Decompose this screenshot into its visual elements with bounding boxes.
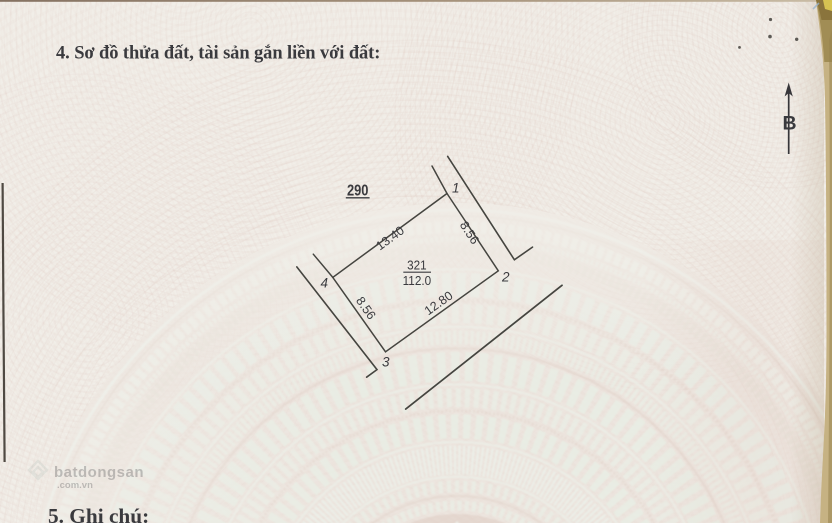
svg-text:4: 4	[321, 276, 329, 291]
svg-text:1: 1	[452, 181, 460, 196]
svg-text:batdongsan: batdongsan	[54, 464, 144, 481]
svg-text:290: 290	[347, 183, 369, 200]
svg-text:112.0: 112.0	[403, 273, 432, 288]
svg-text:2: 2	[501, 270, 510, 285]
svg-text:321: 321	[407, 258, 427, 273]
svg-text:5. Ghi chú:: 5. Ghi chú:	[48, 504, 149, 523]
svg-text:4. Sơ đồ thửa đất, tài sản gắn: 4. Sơ đồ thửa đất, tài sản gắn liền với …	[56, 44, 380, 64]
svg-text:B: B	[783, 112, 797, 134]
svg-text:.com.vn: .com.vn	[57, 480, 93, 491]
svg-text:3: 3	[382, 355, 390, 370]
